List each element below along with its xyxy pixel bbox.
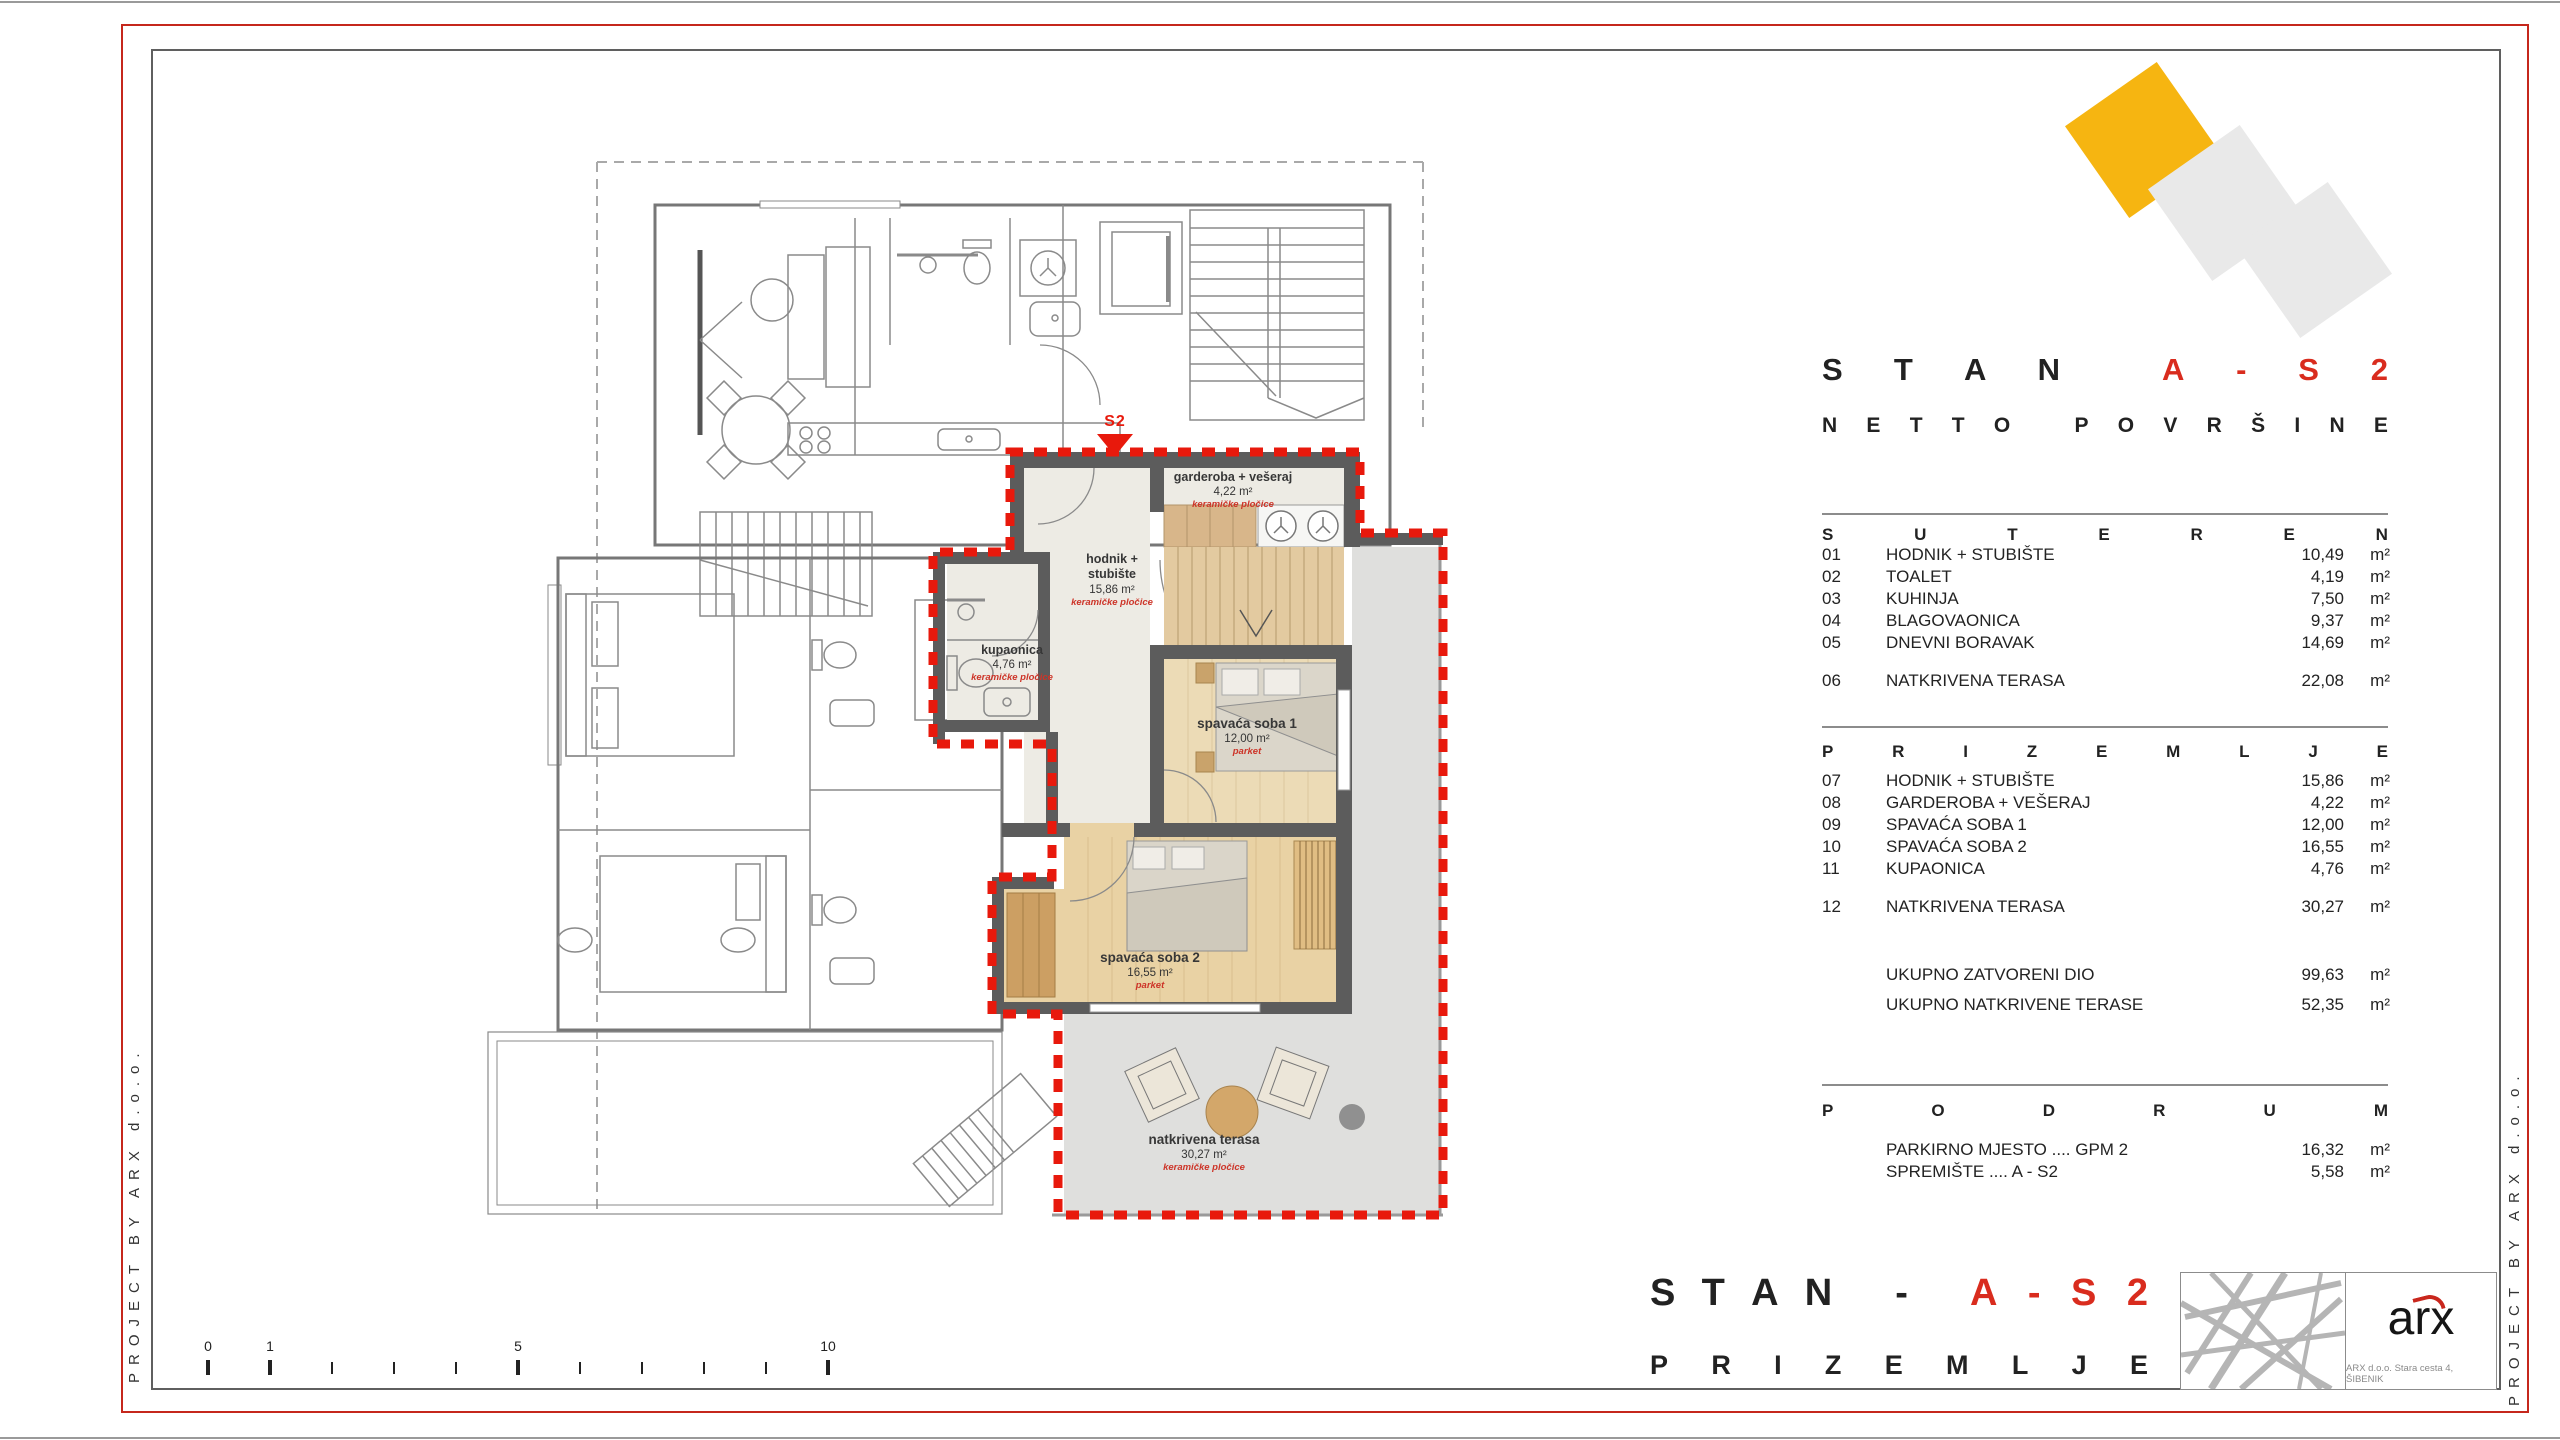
side-credit-left: PROJECT BY ARX d.o.o. [126, 1045, 143, 1383]
scale-tick-minor [579, 1362, 581, 1374]
table-row: PARKIRNO MJESTO .... GPM 216,32m² [1822, 1140, 2390, 1160]
table-row: 11KUPAONICA4,76m² [1822, 859, 2390, 879]
arx-address: ARX d.o.o. Stara cesta 4, ŠIBENIK [2346, 1363, 2492, 1385]
sun-lounger [913, 1074, 1056, 1207]
scale-label: 1 [266, 1338, 274, 1354]
room-label-spavaca2: spavaća soba 2 16,55 m² parket [1070, 950, 1230, 992]
room-label-garderoba: garderoba + vešeraj 4,22 m² keramičke pl… [1148, 470, 1318, 511]
table-row-total: UKUPNO NATKRIVENE TERASE52,35m² [1822, 995, 2390, 1015]
scale-label: 5 [514, 1338, 522, 1354]
side-credit-right: PROJECT BY ARX d.o.o. [2506, 1068, 2523, 1406]
page-top-edge [0, 1, 2560, 3]
scale-tick-minor [765, 1362, 767, 1374]
crisscross-logo-icon [2181, 1273, 2346, 1389]
divider [1822, 1084, 2388, 1086]
table-row: 07HODNIK + STUBIŠTE15,86m² [1822, 771, 2390, 791]
table-row: 01HODNIK + STUBIŠTE10,49m² [1822, 545, 2390, 565]
table-row: 04BLAGOVAONICA9,37m² [1822, 611, 2390, 631]
room-label-hodnik: hodnik + stubište 15,86 m² keramičke plo… [1069, 552, 1155, 608]
section-heading-suteren: SUTEREN [1822, 525, 2388, 545]
table-row-total: UKUPNO ZATVORENI DIO99,63m² [1822, 965, 2390, 985]
terrace-stool [1339, 1104, 1365, 1130]
section-heading-prizemlje: PRIZEMLJE [1822, 742, 2388, 762]
terrace-table [1206, 1086, 1258, 1138]
scale-tick-minor [331, 1362, 333, 1374]
footer-title-red: A-S2 [1970, 1272, 2148, 1315]
room-label-spavaca1: spavaća soba 1 12,00 m² parket [1167, 716, 1327, 758]
scale-tick-minor [455, 1362, 457, 1374]
scale-tick-major [268, 1360, 272, 1375]
table-row: 06NATKRIVENA TERASA22,08m² [1822, 671, 2390, 691]
table-row: 03KUHINJA7,50m² [1822, 589, 2390, 609]
scale-tick-major [826, 1360, 830, 1375]
arx-logo: arx ARX d.o.o. Stara cesta 4, ŠIBENIK [2346, 1273, 2496, 1389]
s2-marker-label: S2 [1104, 413, 1126, 431]
table-row: 08GARDEROBA + VEŠERAJ4,22m² [1822, 793, 2390, 813]
divider [1822, 726, 2388, 728]
footer-title-black: STAN - [1650, 1272, 1908, 1315]
table-row: 12NATKRIVENA TERASA30,27m² [1822, 897, 2390, 917]
washer-icon [1031, 251, 1065, 285]
scale-label: 0 [204, 1338, 212, 1354]
scale-tick-major [206, 1360, 210, 1375]
table-row: SPREMIŠTE .... A - S25,58m² [1822, 1162, 2390, 1182]
table-row: 02TOALET4,19m² [1822, 567, 2390, 587]
footer-subtitle: PRIZEMLJE [1650, 1350, 2148, 1381]
apartment-a-s2 [933, 434, 1443, 1215]
panel-title-black: STAN [1822, 352, 2060, 388]
table-row: 09SPAVAĆA SOBA 112,00m² [1822, 815, 2390, 835]
page-bottom-edge [0, 1437, 2560, 1439]
section-heading-podrum: PODRUM [1822, 1101, 2388, 1121]
divider [1822, 513, 2388, 515]
scale-tick-minor [703, 1362, 705, 1374]
room-label-kupaonica: kupaonica 4,76 m² keramičke pločice [957, 643, 1067, 684]
scale-tick-major [516, 1360, 520, 1375]
room-label-terasa: natkrivena terasa 30,27 m² keramičke plo… [1109, 1132, 1299, 1174]
panel-subtitle: NETTO POVRŠINE [1822, 414, 2388, 438]
panel-title-red: A-S2 [2162, 352, 2388, 388]
table-row: 05DNEVNI BORAVAK14,69m² [1822, 633, 2390, 653]
stairwell [1190, 210, 1364, 420]
scale-tick-minor [641, 1362, 643, 1374]
table-row: 10SPAVAĆA SOBA 216,55m² [1822, 837, 2390, 857]
scale-label: 10 [820, 1338, 836, 1354]
scale-tick-minor [393, 1362, 395, 1374]
title-block-logo: arx ARX d.o.o. Stara cesta 4, ŠIBENIK [2180, 1272, 2497, 1390]
